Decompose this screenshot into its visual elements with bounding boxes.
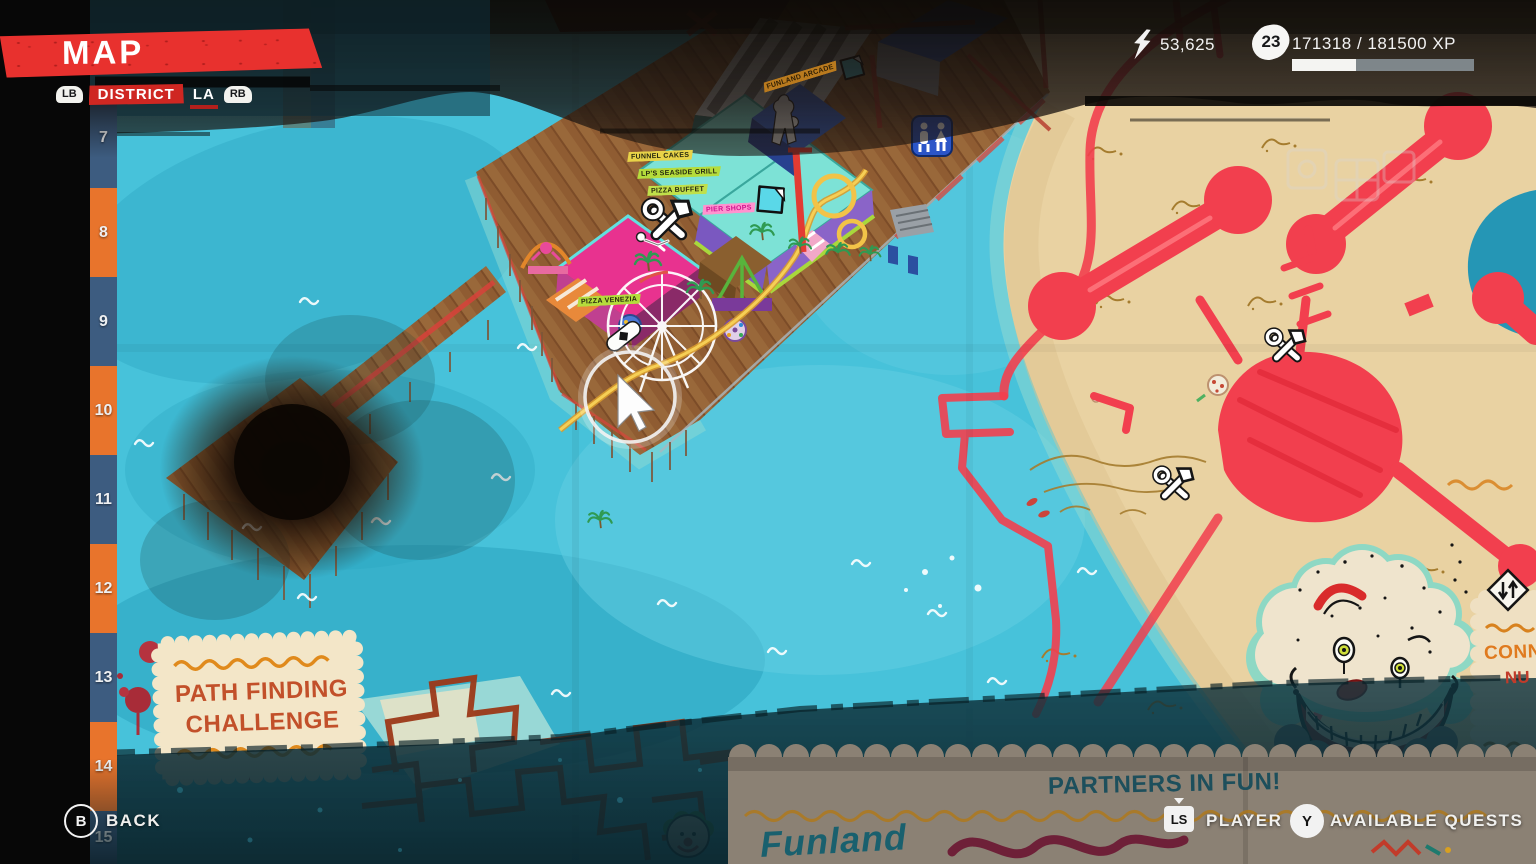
available-quests-label: AVAILABLE QUESTS [1330, 811, 1523, 831]
connect-note-line1: CONN [1484, 641, 1536, 665]
grid-row-label: 8 [99, 224, 108, 242]
rb-button[interactable]: RB [224, 86, 252, 103]
location-label-pizza-buffet: PIZZA BUFFET [647, 184, 708, 196]
back-button[interactable]: B [64, 804, 98, 838]
connect-note-line2: NU [1505, 668, 1530, 689]
back-label: BACK [106, 811, 161, 831]
xp-display: 171318 / 181500 XP [1292, 34, 1474, 71]
xp-progress-fill [1292, 59, 1356, 71]
district-nav: LB DISTRICT LA RB [56, 84, 252, 105]
grid-row-label: 9 [99, 313, 108, 331]
cash-lightning-icon [1132, 29, 1152, 61]
map-grid-ruler: 7 8 9 10 11 12 13 14 15 [90, 0, 117, 864]
grid-row-label: 13 [95, 669, 113, 687]
y-key-icon: Y [1302, 813, 1312, 830]
funland-logo: Funland [759, 816, 908, 864]
current-district-label: LA [190, 86, 218, 103]
page-title: MAP [62, 33, 145, 72]
grid-row-label: 10 [95, 402, 113, 420]
level-badge: 23 [1254, 25, 1288, 59]
level-value: 23 [1262, 32, 1281, 52]
b-key-icon: B [76, 813, 87, 830]
player-label: PLAYER [1206, 811, 1282, 831]
map-stand-icon [755, 184, 787, 216]
left-edge-bar [0, 0, 90, 864]
map-screen: 7 8 9 10 11 12 13 14 15 MAP LB DISTRICT … [0, 0, 1536, 864]
grid-row-label: 11 [95, 491, 112, 509]
ls-key-icon: LS [1171, 812, 1188, 827]
player-stick-button[interactable]: LS [1164, 806, 1194, 832]
currency-display: 53,625 [1132, 29, 1215, 61]
xp-text: 171318 / 181500 XP [1292, 34, 1474, 54]
xp-progress-bar [1292, 59, 1474, 71]
grid-row-label: 12 [95, 580, 113, 598]
partners-banner-title: PARTNERS IN FUN! [1048, 767, 1329, 801]
path-challenge-line2: CHALLENGE [168, 704, 357, 742]
available-quests-button[interactable]: Y [1290, 804, 1324, 838]
district-mode-tab[interactable]: DISTRICT [89, 84, 184, 105]
lb-button[interactable]: LB [56, 86, 83, 103]
currency-amount: 53,625 [1160, 35, 1215, 55]
path-challenge-note-text: PATH FINDING CHALLENGE [167, 673, 357, 742]
